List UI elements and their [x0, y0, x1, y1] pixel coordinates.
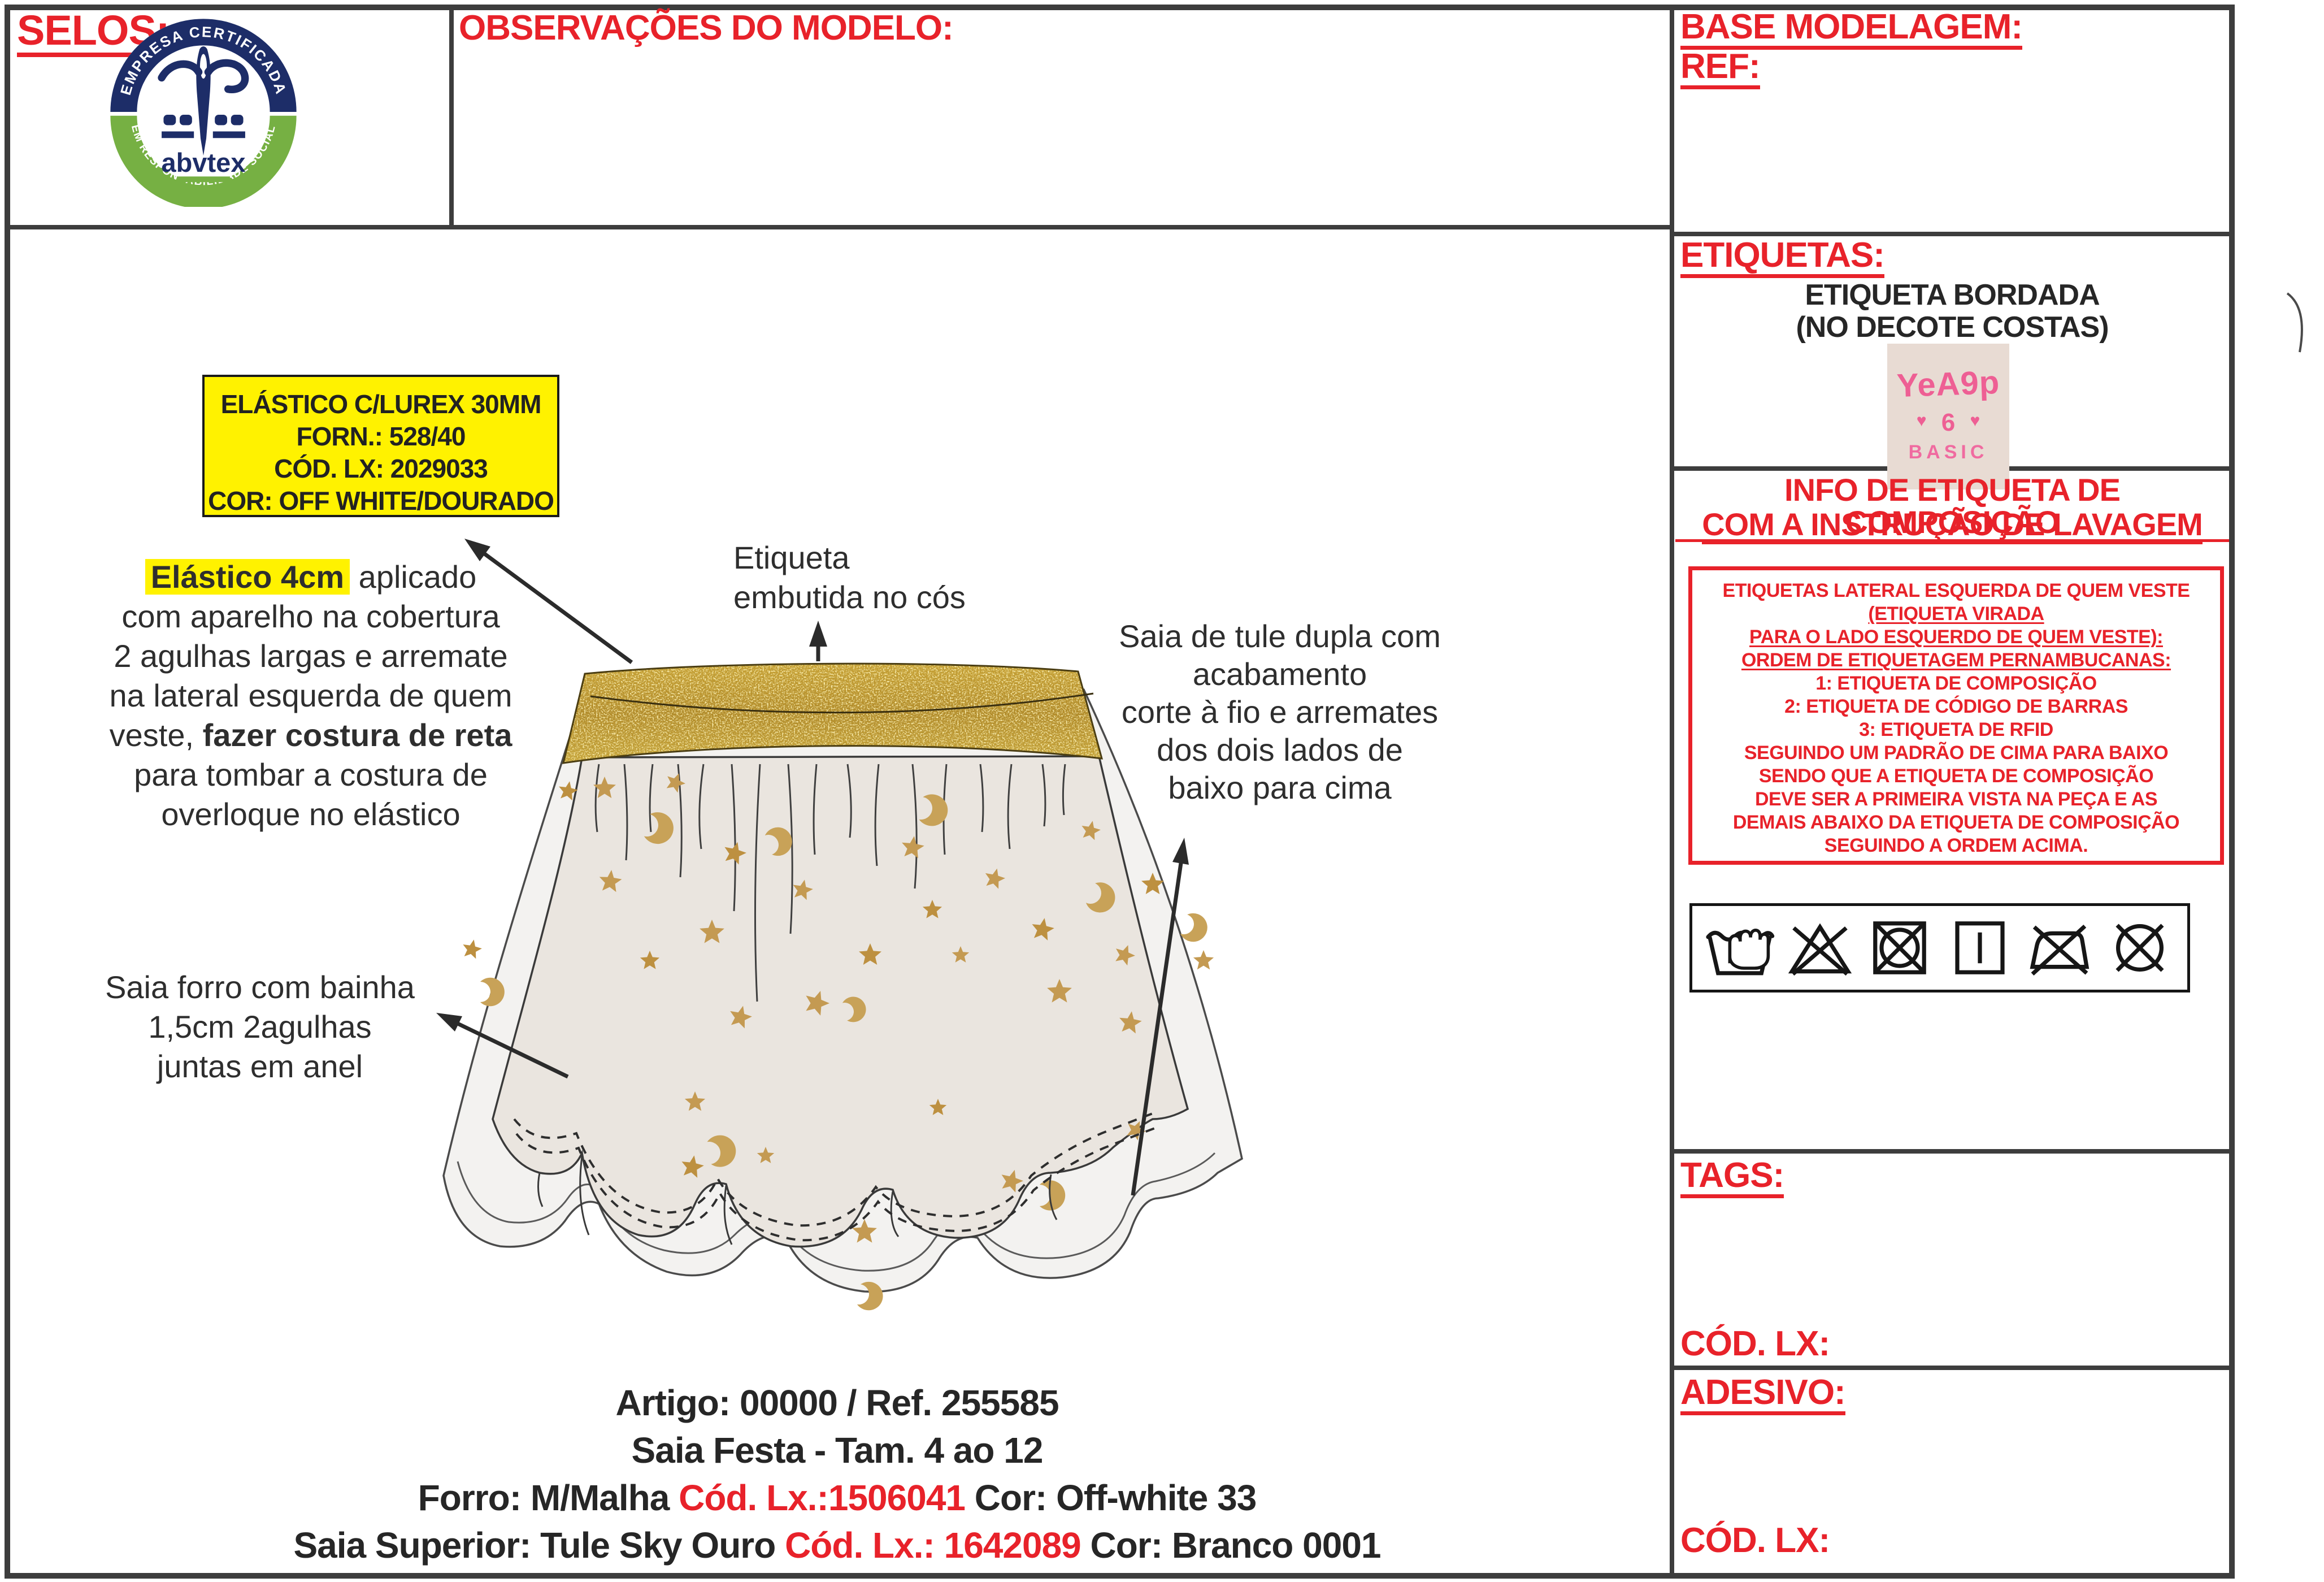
care-symbols-box	[1689, 903, 2190, 992]
info-box-line: DEVE SER A PRIMEIRA VISTA NA PEÇA E AS	[1692, 788, 2220, 811]
arrow-tulle	[1133, 838, 1189, 1195]
article-line-1: Artigo: 00000 / Ref. 255585	[5, 1379, 1670, 1427]
line-dry-icon	[1944, 909, 2016, 987]
label-heart-left: ♥	[1917, 411, 1927, 430]
logo-brand-text: abvtex	[162, 148, 246, 177]
divider-selos-observacoes	[449, 5, 454, 226]
article-line-3: Forro: M/Malha Cód. Lx.:1506041 Cor: Off…	[5, 1474, 1670, 1522]
divider-tags-adesivo	[1674, 1366, 2229, 1370]
arrow-waist-label	[809, 621, 827, 661]
info-box-line: SENDO QUE A ETIQUETA DE COMPOSIÇÃO	[1692, 765, 2220, 788]
stray-mark	[2283, 285, 2317, 359]
logo-brand-underline	[177, 176, 230, 182]
hand-wash-icon	[1704, 909, 1776, 987]
info-box-line: ORDEM DE ETIQUETAGEM PERNAMBUCANAS:	[1692, 649, 2220, 672]
base-modelagem-header: BASE MODELAGEM:	[1680, 9, 2022, 50]
article-line-4: Saia Superior: Tule Sky Ouro Cód. Lx.: 1…	[5, 1522, 1670, 1569]
info-box: ETIQUETAS LATERAL ESQUERDA DE QUEM VESTE…	[1688, 566, 2224, 865]
etiqueta-bordada-line1: ETIQUETA BORDADA	[1675, 278, 2229, 312]
annotation-arrows	[0, 226, 1670, 1577]
info-box-line: 1: ETIQUETA DE COMPOSIÇÃO	[1692, 672, 2220, 695]
brand-label-logo: YeA9p	[1887, 363, 2010, 405]
info-box-line: SEGUINDO A ORDEM ACIMA.	[1692, 834, 2220, 857]
info-title-line2: COM A INSTRUÇÃO DE LAVAGEM	[1675, 508, 2229, 544]
label-size-number: 6	[1934, 409, 1963, 436]
waist-label-note: Etiqueta embutida no cós	[733, 538, 966, 617]
do-not-tumble-dry-icon	[1863, 909, 1936, 987]
etiqueta-bordada-line2: (NO DECOTE COSTAS)	[1675, 310, 2229, 344]
divider-info-tags	[1674, 1149, 2229, 1154]
adesivo-cod-lx: CÓD. LX:	[1680, 1523, 1830, 1558]
elastic-note: Elástico 4cm aplicado com aparelho na co…	[68, 557, 554, 834]
abvtex-logo: EMPRESA CERTIFICADA EM RESPONSABILIDADE …	[108, 17, 298, 207]
brand-label-swatch: YeA9p ♥ 6 ♥ BASIC	[1887, 344, 2009, 489]
ref-header: REF:	[1680, 49, 1760, 89]
tags-cod-lx: CÓD. LX:	[1680, 1326, 1830, 1362]
info-box-line: DEMAIS ABAIXO DA ETIQUETA DE COMPOSIÇÃO	[1692, 811, 2220, 834]
adesivo-header: ADESIVO:	[1680, 1375, 1845, 1415]
info-box-line: 3: ETIQUETA DE RFID	[1692, 718, 2220, 742]
label-heart-right: ♥	[1970, 411, 1980, 430]
label-basic-text: BASIC	[1887, 441, 2009, 463]
info-box-line: PARA O LADO ESQUERDO DE QUEM VESTE):	[1692, 626, 2220, 649]
article-info: Artigo: 00000 / Ref. 255585 Saia Festa -…	[5, 1379, 1670, 1569]
do-not-iron-icon	[2023, 909, 2096, 987]
article-line-2: Saia Festa - Tam. 4 ao 12	[5, 1427, 1670, 1474]
do-not-bleach-icon	[1784, 909, 1856, 987]
elastic-note-highlight: Elástico 4cm	[145, 559, 350, 595]
abvtex-logo-svg: EMPRESA CERTIFICADA EM RESPONSABILIDADE …	[108, 17, 298, 207]
info-box-line: 2: ETIQUETA DE CÓDIGO DE BARRAS	[1692, 695, 2220, 718]
do-not-dry-clean-icon	[2104, 909, 2176, 987]
etiquetas-header: ETIQUETAS:	[1680, 237, 1884, 278]
tags-header: TAGS:	[1680, 1158, 1784, 1198]
info-box-line: (ETIQUETA VIRADA	[1692, 603, 2220, 626]
tulle-note: Saia de tule dupla com acabamento corte …	[1093, 617, 1466, 807]
observacoes-header: OBSERVAÇÕES DO MODELO:	[459, 10, 953, 46]
divider-main-rightcol	[1670, 5, 1674, 1579]
lining-note: Saia forro com bainha 1,5cm 2agulhas jun…	[62, 968, 458, 1086]
info-box-line: SEGUINDO UM PADRÃO DE CIMA PARA BAIXO	[1692, 742, 2220, 765]
info-box-line: ETIQUETAS LATERAL ESQUERDA DE QUEM VESTE	[1692, 579, 2220, 603]
